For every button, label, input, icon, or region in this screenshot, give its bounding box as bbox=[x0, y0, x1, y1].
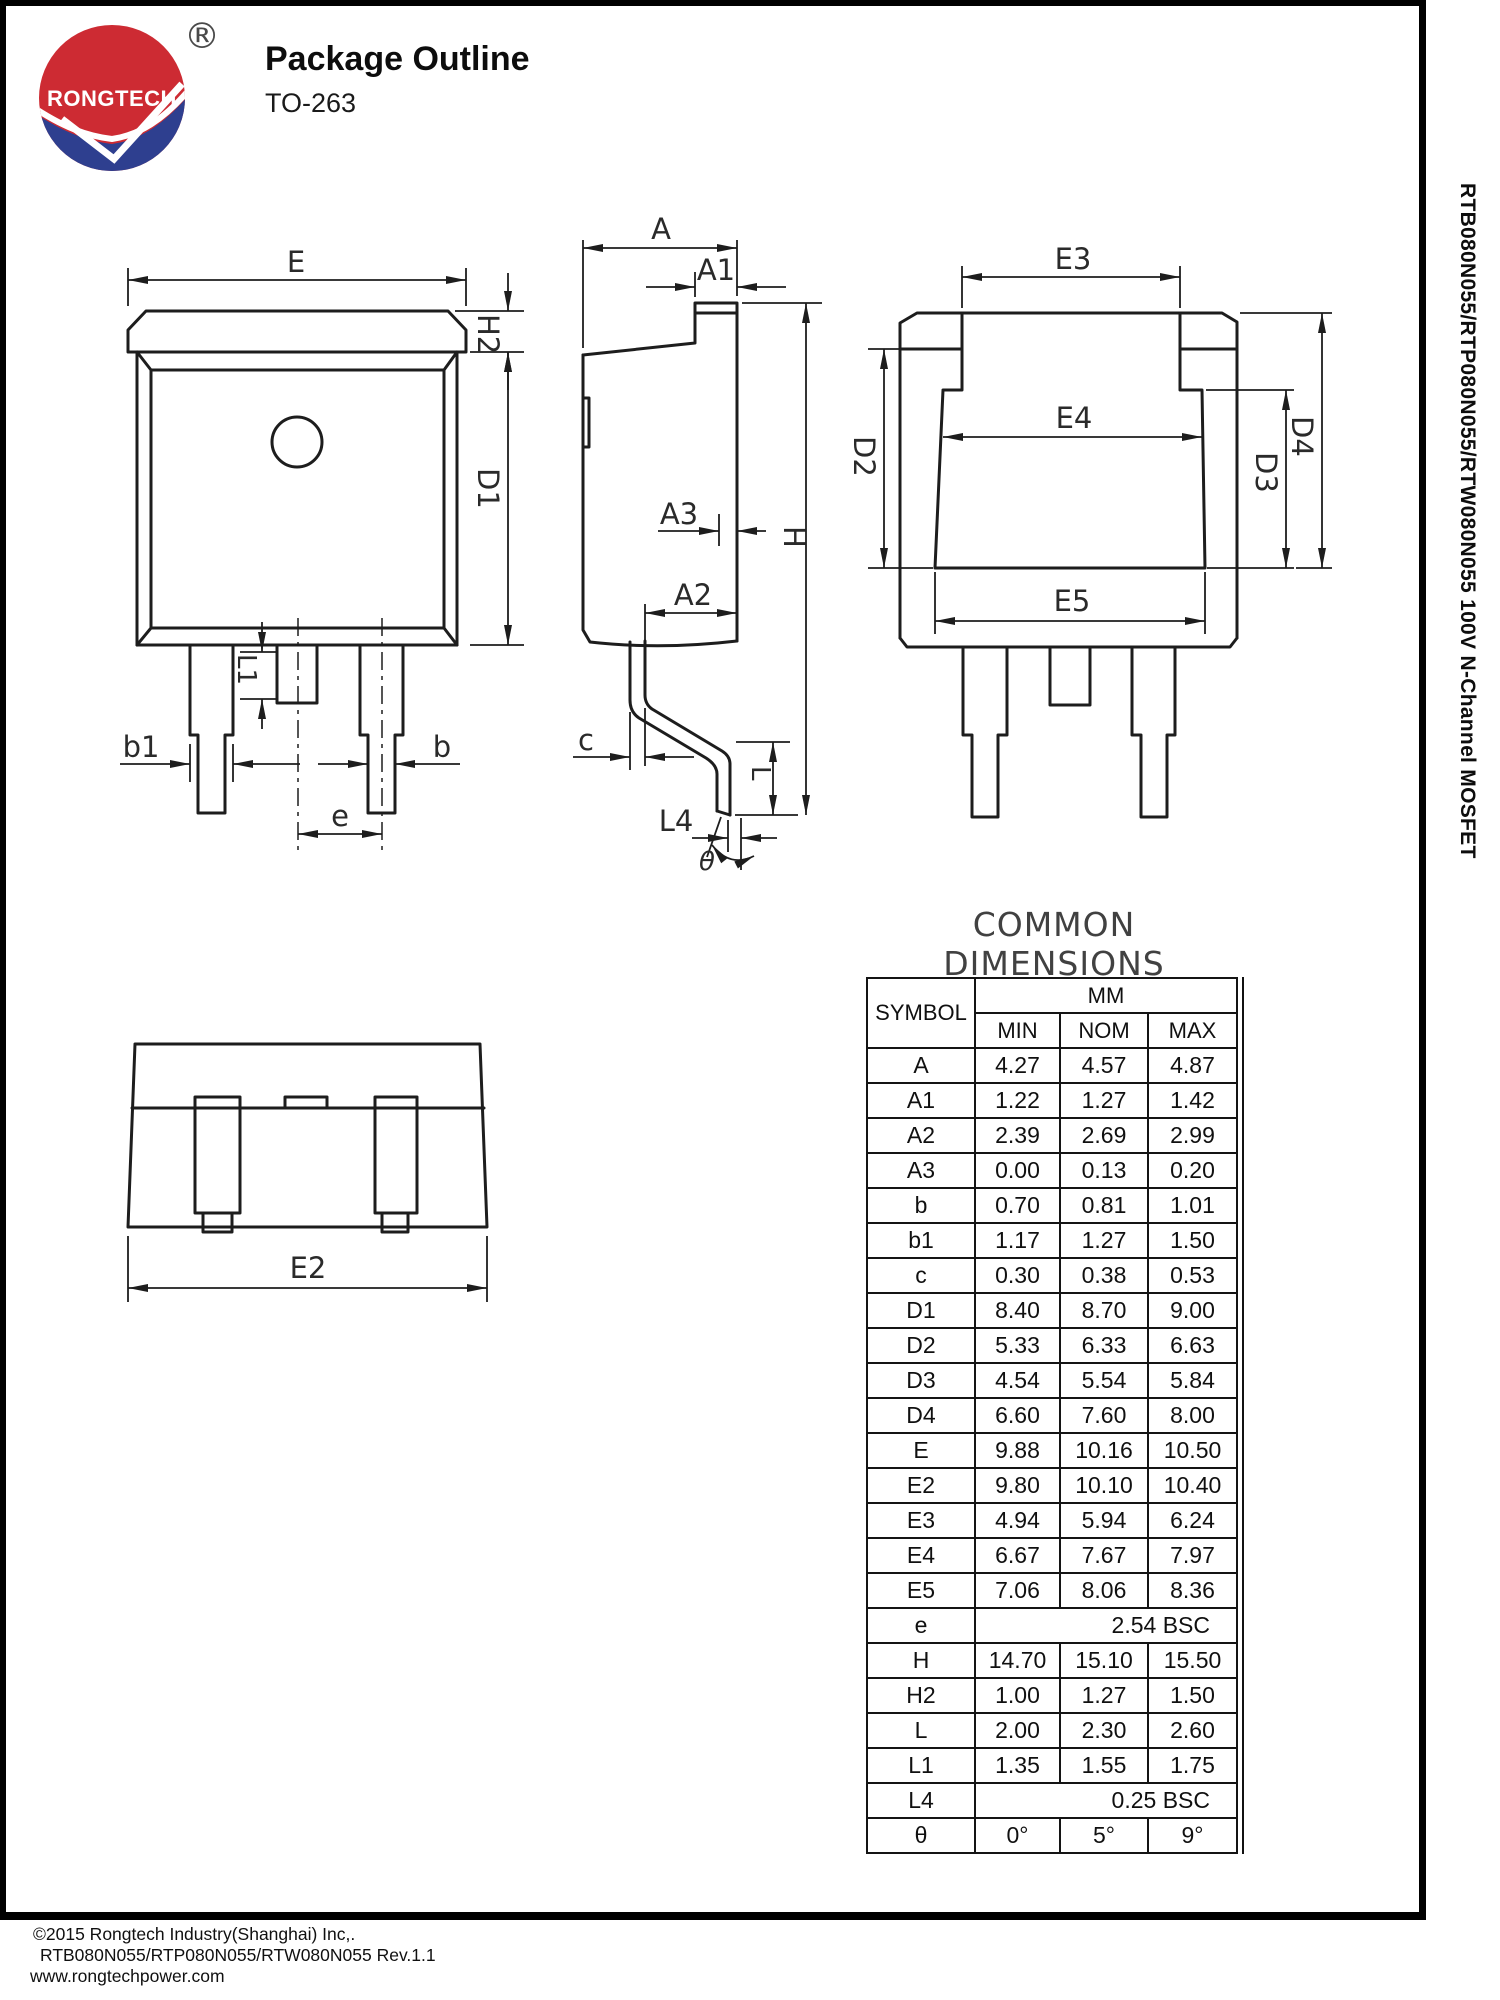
dim-D1: D1 bbox=[470, 352, 524, 645]
dim-label-A3: A3 bbox=[660, 497, 698, 531]
bottom-stub-tab bbox=[285, 1097, 327, 1108]
table-row: b11.171.271.50 bbox=[867, 1223, 1237, 1258]
front-pin-left bbox=[190, 645, 233, 813]
bottom-view: E2 bbox=[128, 1044, 487, 1302]
dimensions-table: SYMBOL MM MIN NOM MAX A4.274.574.87A11.2… bbox=[866, 977, 1238, 1854]
value-cell: 6.33 bbox=[1060, 1328, 1148, 1363]
symbol-cell: E2 bbox=[867, 1468, 975, 1503]
rear-body-bottom bbox=[900, 638, 1237, 647]
dim-theta: θ bbox=[699, 817, 754, 877]
value-cell: 6.63 bbox=[1148, 1328, 1237, 1363]
value-cell: 9.88 bbox=[975, 1433, 1060, 1468]
value-cell: 10.16 bbox=[1060, 1433, 1148, 1468]
dim-H: H bbox=[742, 303, 822, 815]
symbol-cell: E bbox=[867, 1433, 975, 1468]
table-row: H21.001.271.50 bbox=[867, 1678, 1237, 1713]
value-cell: 8.06 bbox=[1060, 1573, 1148, 1608]
table-row: E46.677.677.97 bbox=[867, 1538, 1237, 1573]
table-row: e2.54 BSC bbox=[867, 1608, 1237, 1643]
dim-label-D2: D2 bbox=[847, 436, 881, 477]
dim-label-L: L bbox=[745, 766, 775, 781]
dim-A1: A1 bbox=[646, 253, 786, 297]
dim-E2: E2 bbox=[128, 1236, 487, 1302]
symbol-cell: H bbox=[867, 1643, 975, 1678]
symbol-cell: A2 bbox=[867, 1118, 975, 1153]
value-cell: 6.60 bbox=[975, 1398, 1060, 1433]
symbol-cell: E5 bbox=[867, 1573, 975, 1608]
dim-A2: A2 bbox=[645, 578, 737, 650]
symbol-cell: D1 bbox=[867, 1293, 975, 1328]
nom-header: NOM bbox=[1060, 1013, 1148, 1048]
dim-b: b bbox=[318, 730, 460, 782]
symbol-header: SYMBOL bbox=[867, 978, 975, 1048]
symbol-cell: L bbox=[867, 1713, 975, 1748]
table-row: E57.068.068.36 bbox=[867, 1573, 1237, 1608]
table-row: L40.25 BSC bbox=[867, 1783, 1237, 1818]
table-row: A4.274.574.87 bbox=[867, 1048, 1237, 1083]
symbol-cell: L4 bbox=[867, 1783, 975, 1818]
table-row: D18.408.709.00 bbox=[867, 1293, 1237, 1328]
dim-label-L4: L4 bbox=[659, 804, 694, 838]
table-row: b0.700.811.01 bbox=[867, 1188, 1237, 1223]
footer: ©2015 Rongtech Industry(Shanghai) Inc,. … bbox=[30, 1924, 436, 1987]
dim-L: L bbox=[735, 742, 798, 815]
front-pin-middle-stub bbox=[277, 645, 317, 703]
dim-L1: L1 bbox=[231, 622, 278, 729]
bottom-lead-left bbox=[195, 1097, 240, 1213]
value-cell: 1.75 bbox=[1148, 1748, 1237, 1783]
value-cell: 6.67 bbox=[975, 1538, 1060, 1573]
value-cell: 10.10 bbox=[1060, 1468, 1148, 1503]
dim-label-A: A bbox=[651, 212, 671, 246]
dim-E3: E3 bbox=[962, 242, 1180, 308]
value-cell: 2.99 bbox=[1148, 1118, 1237, 1153]
dim-label-L1: L1 bbox=[231, 654, 261, 685]
table-row: E29.8010.1010.40 bbox=[867, 1468, 1237, 1503]
dim-A3: A3 bbox=[658, 497, 766, 546]
package-outline-drawing: E H2 D1 L1 bbox=[0, 0, 1500, 2000]
symbol-cell: L1 bbox=[867, 1748, 975, 1783]
value-cell: 8.00 bbox=[1148, 1398, 1237, 1433]
value-cell: 1.27 bbox=[1060, 1678, 1148, 1713]
dim-D2: D2 bbox=[847, 349, 933, 568]
value-cell: 7.60 bbox=[1060, 1398, 1148, 1433]
table-row: c0.300.380.53 bbox=[867, 1258, 1237, 1293]
symbol-cell: E4 bbox=[867, 1538, 975, 1573]
front-tab-outline bbox=[128, 311, 466, 352]
dim-E5: E5 bbox=[935, 572, 1205, 634]
value-cell: 8.40 bbox=[975, 1293, 1060, 1328]
value-cell: 0.53 bbox=[1148, 1258, 1237, 1293]
value-cell: 1.55 bbox=[1060, 1748, 1148, 1783]
value-cell: 8.70 bbox=[1060, 1293, 1148, 1328]
value-cell: 1.17 bbox=[975, 1223, 1060, 1258]
value-cell: 2.54 BSC bbox=[975, 1608, 1237, 1643]
value-cell: 1.50 bbox=[1148, 1223, 1237, 1258]
table-row: A22.392.692.99 bbox=[867, 1118, 1237, 1153]
symbol-cell: c bbox=[867, 1258, 975, 1293]
dim-label-b1: b1 bbox=[123, 730, 160, 764]
value-cell: 9.00 bbox=[1148, 1293, 1237, 1328]
dim-label-E3: E3 bbox=[1055, 242, 1092, 276]
value-cell: 1.27 bbox=[1060, 1223, 1148, 1258]
dim-E4: E4 bbox=[943, 401, 1202, 437]
rear-view: E3 E4 E5 D2 D3 bbox=[847, 242, 1332, 817]
value-cell: 6.24 bbox=[1148, 1503, 1237, 1538]
value-cell: 10.50 bbox=[1148, 1433, 1237, 1468]
value-cell: 0.38 bbox=[1060, 1258, 1148, 1293]
table-row: E9.8810.1610.50 bbox=[867, 1433, 1237, 1468]
rear-pin-right bbox=[1132, 647, 1175, 817]
value-cell: 14.70 bbox=[975, 1643, 1060, 1678]
dim-label-E4: E4 bbox=[1056, 401, 1093, 435]
symbol-cell: θ bbox=[867, 1818, 975, 1853]
value-cell: 1.22 bbox=[975, 1083, 1060, 1118]
symbol-cell: A3 bbox=[867, 1153, 975, 1188]
value-cell: 5.54 bbox=[1060, 1363, 1148, 1398]
value-cell: 5° bbox=[1060, 1818, 1148, 1853]
value-cell: 0° bbox=[975, 1818, 1060, 1853]
value-cell: 1.27 bbox=[1060, 1083, 1148, 1118]
value-cell: 0.00 bbox=[975, 1153, 1060, 1188]
bottom-lead-right-foot bbox=[382, 1213, 408, 1232]
footer-copyright: ©2015 Rongtech Industry(Shanghai) Inc,. bbox=[30, 1924, 436, 1945]
symbol-cell: b bbox=[867, 1188, 975, 1223]
value-cell: 4.94 bbox=[975, 1503, 1060, 1538]
bottom-lead-right bbox=[375, 1097, 417, 1213]
value-cell: 0.30 bbox=[975, 1258, 1060, 1293]
value-cell: 1.50 bbox=[1148, 1678, 1237, 1713]
symbol-cell: D3 bbox=[867, 1363, 975, 1398]
dimensions-table-wrap: SYMBOL MM MIN NOM MAX A4.274.574.87A11.2… bbox=[866, 977, 1244, 1854]
side-body-outline bbox=[583, 303, 737, 641]
symbol-cell: H2 bbox=[867, 1678, 975, 1713]
dim-D3: D3 bbox=[1206, 390, 1294, 568]
footer-revision: RTB080N055/RTP080N055/RTW080N055 Rev.1.1 bbox=[30, 1945, 436, 1966]
value-cell: 7.06 bbox=[975, 1573, 1060, 1608]
rear-pin-middle-stub bbox=[1050, 647, 1090, 705]
dim-label-E5: E5 bbox=[1054, 584, 1091, 618]
value-cell: 0.25 BSC bbox=[975, 1783, 1237, 1818]
rear-exposed-pad bbox=[935, 313, 1205, 568]
value-cell: 1.00 bbox=[975, 1678, 1060, 1713]
dim-b1: b1 bbox=[120, 730, 300, 782]
table-row: A30.000.130.20 bbox=[867, 1153, 1237, 1188]
value-cell: 15.10 bbox=[1060, 1643, 1148, 1678]
value-cell: 0.13 bbox=[1060, 1153, 1148, 1188]
front-hole bbox=[272, 417, 322, 467]
value-cell: 8.36 bbox=[1148, 1573, 1237, 1608]
value-cell: 2.39 bbox=[975, 1118, 1060, 1153]
value-cell: 2.30 bbox=[1060, 1713, 1148, 1748]
dim-label-E2: E2 bbox=[290, 1251, 327, 1285]
bottom-body-outline bbox=[128, 1044, 487, 1227]
dim-label-H: H bbox=[777, 526, 811, 548]
value-cell: 4.57 bbox=[1060, 1048, 1148, 1083]
dim-label-D4: D4 bbox=[1285, 416, 1319, 457]
table-row: H14.7015.1015.50 bbox=[867, 1643, 1237, 1678]
symbol-cell: D2 bbox=[867, 1328, 975, 1363]
dim-label-theta: θ bbox=[699, 847, 715, 877]
value-cell: 2.69 bbox=[1060, 1118, 1148, 1153]
table-row: A11.221.271.42 bbox=[867, 1083, 1237, 1118]
value-cell: 0.70 bbox=[975, 1188, 1060, 1223]
dim-label-D3: D3 bbox=[1249, 452, 1283, 493]
front-body-inner-lines bbox=[137, 352, 457, 645]
dim-label-A2: A2 bbox=[674, 578, 712, 612]
max-header: MAX bbox=[1148, 1013, 1237, 1048]
dim-label-D1: D1 bbox=[471, 468, 505, 509]
value-cell: 7.97 bbox=[1148, 1538, 1237, 1573]
value-cell: 0.81 bbox=[1060, 1188, 1148, 1223]
value-cell: 5.84 bbox=[1148, 1363, 1237, 1398]
table-title: COMMON DIMENSIONS bbox=[858, 905, 1250, 983]
symbol-cell: A1 bbox=[867, 1083, 975, 1118]
value-cell: 2.00 bbox=[975, 1713, 1060, 1748]
symbol-cell: D4 bbox=[867, 1398, 975, 1433]
value-cell: 1.42 bbox=[1148, 1083, 1237, 1118]
symbol-cell: E3 bbox=[867, 1503, 975, 1538]
rear-pin-left bbox=[963, 647, 1007, 817]
dim-label-E: E bbox=[287, 245, 305, 279]
table-row: L2.002.302.60 bbox=[867, 1713, 1237, 1748]
bottom-lead-left-foot bbox=[203, 1213, 232, 1232]
dim-L4: L4 bbox=[659, 804, 777, 870]
dim-E: E bbox=[128, 245, 466, 306]
value-cell: 4.54 bbox=[975, 1363, 1060, 1398]
table-row: D46.607.608.00 bbox=[867, 1398, 1237, 1433]
table-row: θ0°5°9° bbox=[867, 1818, 1237, 1853]
dimensions-table-body: A4.274.574.87A11.221.271.42A22.392.692.9… bbox=[867, 1048, 1237, 1853]
dim-label-e: e bbox=[331, 799, 349, 833]
min-header: MIN bbox=[975, 1013, 1060, 1048]
unit-header: MM bbox=[975, 978, 1237, 1013]
table-header-row-1: SYMBOL MM bbox=[867, 978, 1237, 1013]
footer-website: www.rongtechpower.com bbox=[30, 1966, 436, 1987]
value-cell: 5.94 bbox=[1060, 1503, 1148, 1538]
dim-label-A1: A1 bbox=[697, 253, 735, 287]
datasheet-page: RONGTECH ® Package Outline TO-263 RTB080… bbox=[0, 0, 1500, 2000]
front-body-outline bbox=[137, 352, 457, 645]
table-row: L11.351.551.75 bbox=[867, 1748, 1237, 1783]
table-row: D25.336.336.63 bbox=[867, 1328, 1237, 1363]
side-lead-tip bbox=[717, 811, 730, 815]
value-cell: 1.01 bbox=[1148, 1188, 1237, 1223]
table-row: E34.945.946.24 bbox=[867, 1503, 1237, 1538]
table-row: D34.545.545.84 bbox=[867, 1363, 1237, 1398]
value-cell: 10.40 bbox=[1148, 1468, 1237, 1503]
value-cell: 2.60 bbox=[1148, 1713, 1237, 1748]
dim-label-H2: H2 bbox=[471, 314, 505, 354]
value-cell: 4.87 bbox=[1148, 1048, 1237, 1083]
value-cell: 15.50 bbox=[1148, 1643, 1237, 1678]
value-cell: 0.20 bbox=[1148, 1153, 1237, 1188]
dim-label-c: c bbox=[578, 723, 594, 757]
value-cell: 9.80 bbox=[975, 1468, 1060, 1503]
front-view: E H2 D1 L1 bbox=[120, 245, 524, 852]
side-view: A A1 H A3 A2 bbox=[573, 212, 822, 877]
side-lead-outer bbox=[630, 642, 717, 811]
value-cell: 5.33 bbox=[975, 1328, 1060, 1363]
value-cell: 1.35 bbox=[975, 1748, 1060, 1783]
value-cell: 9° bbox=[1148, 1818, 1237, 1853]
symbol-cell: A bbox=[867, 1048, 975, 1083]
symbol-cell: e bbox=[867, 1608, 975, 1643]
symbol-cell: b1 bbox=[867, 1223, 975, 1258]
value-cell: 4.27 bbox=[975, 1048, 1060, 1083]
dim-label-b: b bbox=[433, 730, 451, 764]
value-cell: 7.67 bbox=[1060, 1538, 1148, 1573]
